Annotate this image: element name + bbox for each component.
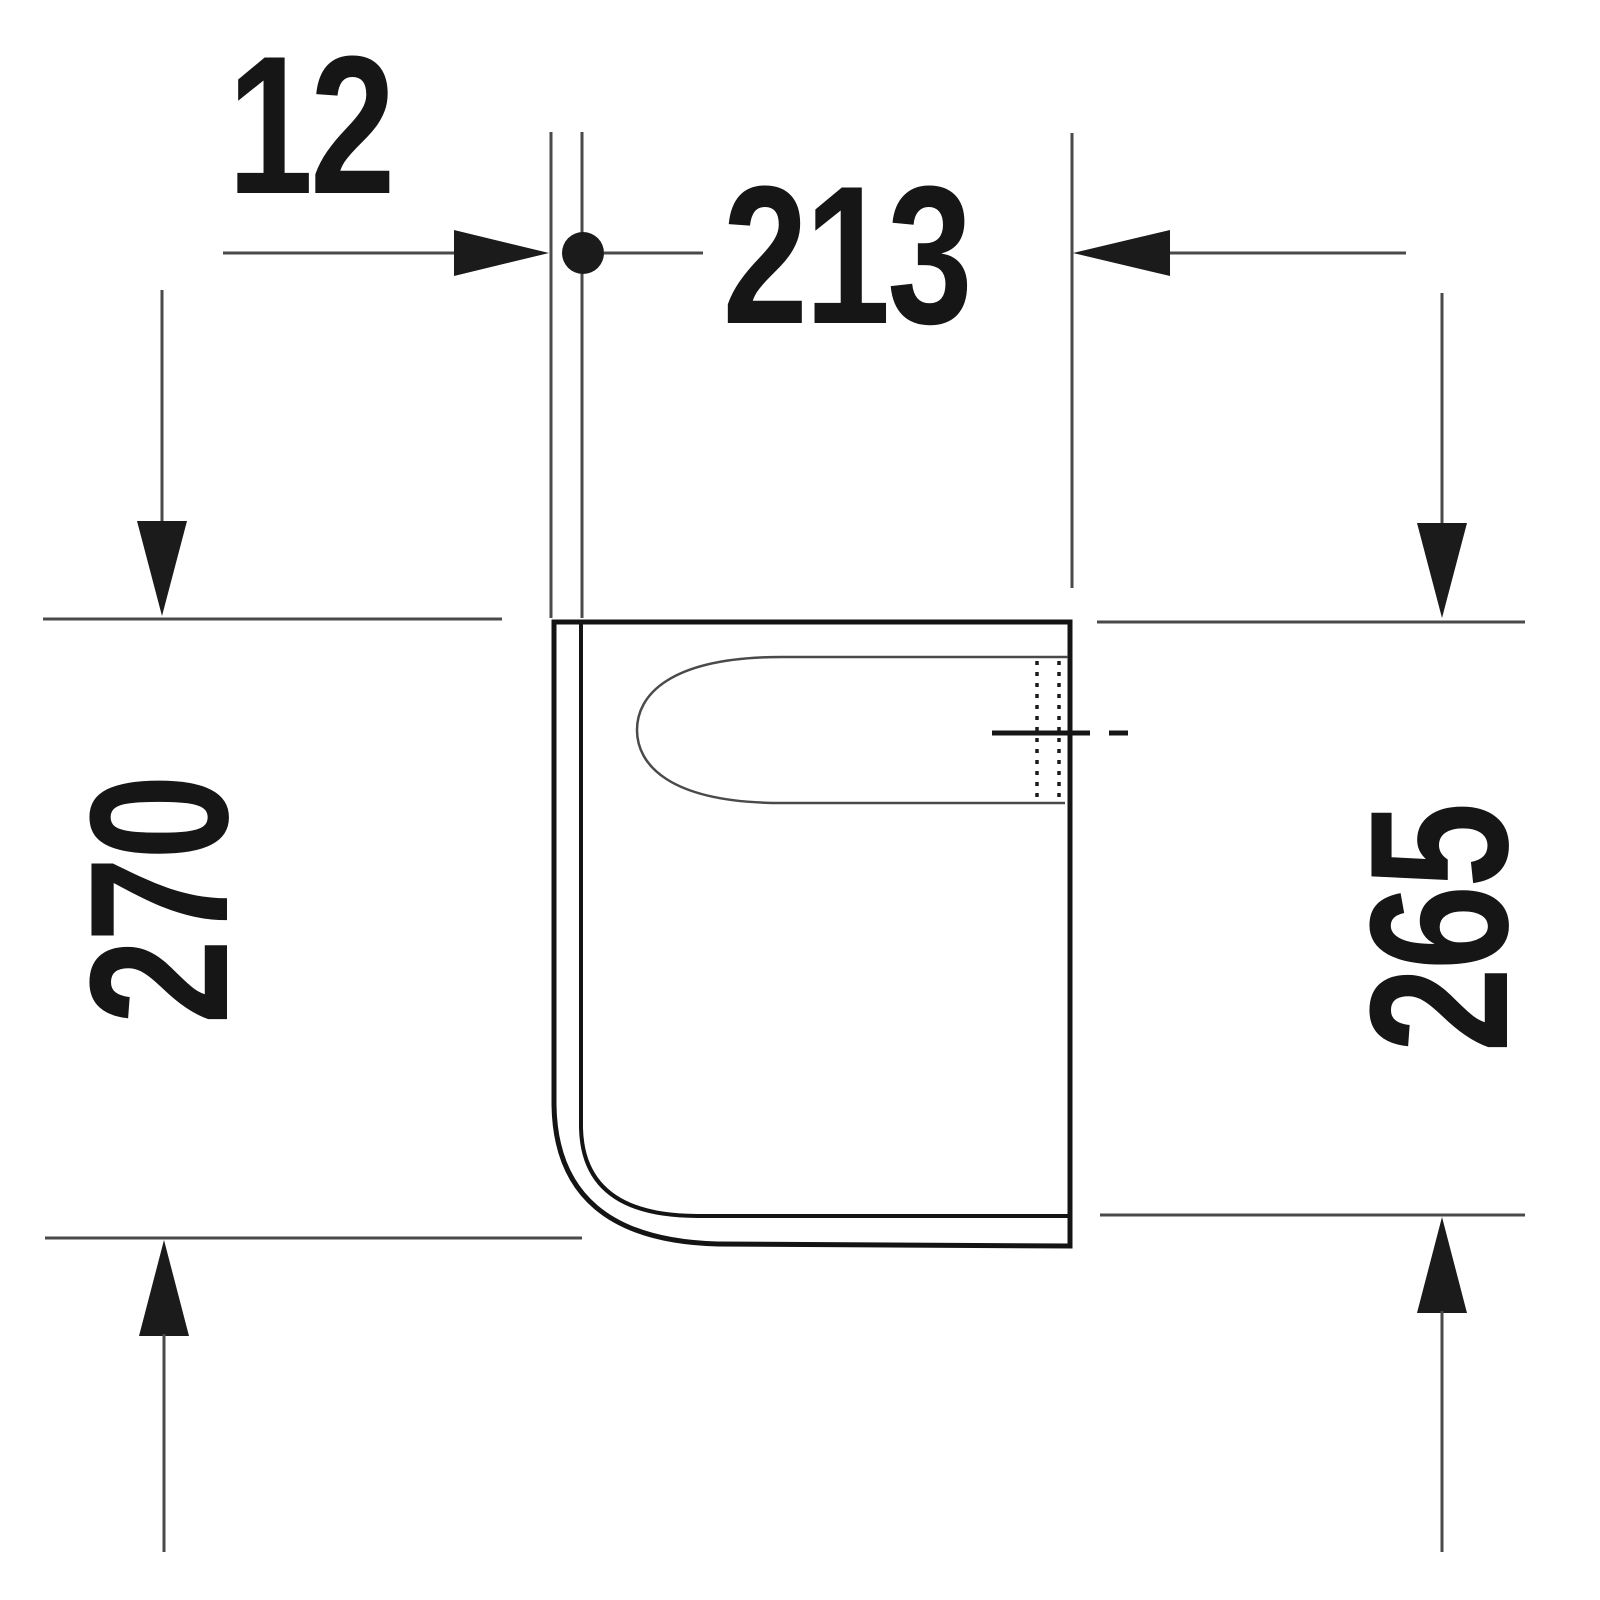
fixture-outline [554,622,1070,1246]
dim-value-213: 213 [722,146,969,366]
basin-arch [637,657,1068,803]
arch-contour [637,657,1068,803]
arrow-down-icon [137,521,187,616]
dim-value-265: 265 [1330,805,1550,1052]
dimension-265: 265 [1097,293,1549,1552]
arrow-right-icon [454,230,549,276]
hidden-lines [1037,661,1059,797]
arrow-up-icon [1417,1217,1467,1313]
arrow-up-icon [139,1240,189,1336]
technical-drawing: 12 213 270 265 [0,0,1600,1600]
dimension-270: 270 [43,290,582,1552]
fixture-inner-edge [581,622,1068,1216]
dimension-12: 12 [223,16,703,618]
arrow-left-icon [1073,230,1170,276]
dim-value-270: 270 [50,777,270,1024]
drawing-canvas: 12 213 270 265 [0,0,1600,1600]
arrow-down-icon [1417,523,1467,618]
dimension-213: 213 [722,133,1406,588]
dim-value-12: 12 [228,16,393,236]
dimension-dot [562,232,604,274]
fixture-outer-contour [554,622,1070,1246]
